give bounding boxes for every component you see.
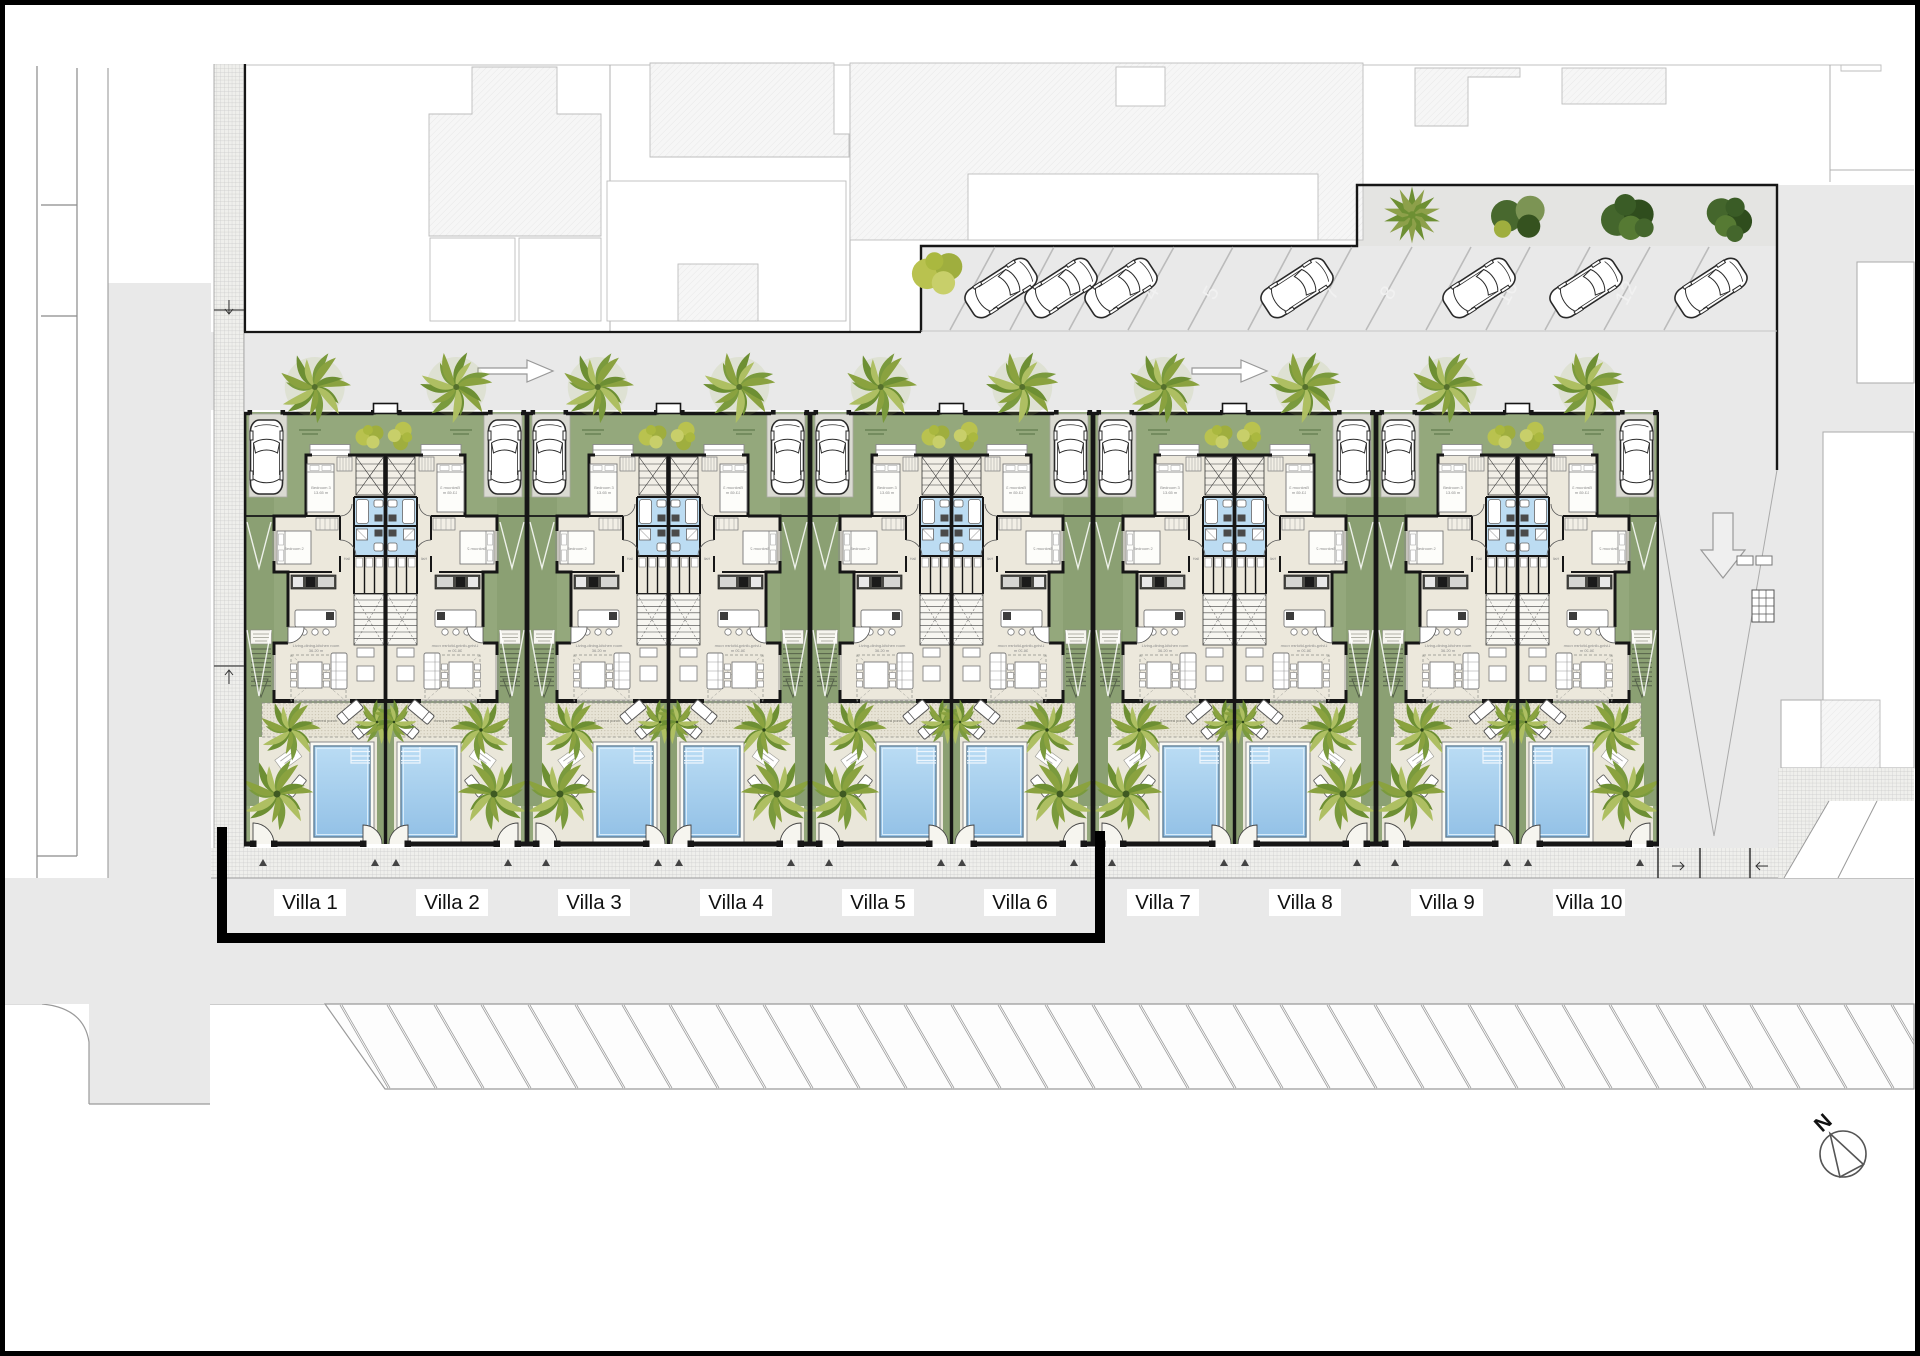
svg-text:Covered porch: Covered porch: [1443, 718, 1469, 723]
svg-text:36.20 m: 36.20 m: [1296, 648, 1311, 653]
svg-text:36.20 m: 36.20 m: [592, 648, 607, 653]
svg-text:Villa 3: Villa 3: [566, 891, 621, 914]
svg-text:Covered porch: Covered porch: [1000, 718, 1026, 723]
svg-text:13.65 m: 13.65 m: [1574, 490, 1589, 495]
svg-text:Covered porch: Covered porch: [1160, 718, 1186, 723]
svg-text:Hall: Hall: [987, 557, 993, 561]
svg-text:36.20 m: 36.20 m: [875, 648, 890, 653]
svg-text:Hall: Hall: [627, 557, 633, 561]
svg-text:Villa 10: Villa 10: [1556, 891, 1623, 914]
svg-text:Hall: Hall: [421, 557, 427, 561]
svg-text:Covered porch: Covered porch: [877, 718, 903, 723]
svg-text:Covered porch: Covered porch: [717, 718, 743, 723]
svg-text:Covered porch: Covered porch: [434, 718, 460, 723]
svg-text:13.65 m: 13.65 m: [725, 490, 740, 495]
svg-text:36.20 m: 36.20 m: [309, 648, 324, 653]
svg-text:Hall: Hall: [1553, 557, 1559, 561]
svg-text:13.65 m: 13.65 m: [1291, 490, 1306, 495]
svg-text:36.20 m: 36.20 m: [1441, 648, 1456, 653]
svg-text:Covered porch: Covered porch: [594, 718, 620, 723]
svg-text:Hall: Hall: [1476, 557, 1482, 561]
svg-text:13.65 m: 13.65 m: [1446, 490, 1461, 495]
svg-text:13.65 m: 13.65 m: [597, 490, 612, 495]
svg-text:Bedroom 2: Bedroom 2: [1315, 546, 1335, 551]
svg-text:Hall: Hall: [910, 557, 916, 561]
svg-text:13.65 m: 13.65 m: [442, 490, 457, 495]
svg-text:36.20 m: 36.20 m: [730, 648, 745, 653]
svg-text:36.20 m: 36.20 m: [1013, 648, 1028, 653]
svg-text:Bedroom 2: Bedroom 2: [1416, 546, 1436, 551]
svg-text:Villa 7: Villa 7: [1135, 891, 1190, 914]
svg-text:Villa 8: Villa 8: [1277, 891, 1332, 914]
svg-text:Villa 9: Villa 9: [1419, 891, 1474, 914]
svg-text:Hall: Hall: [344, 557, 350, 561]
svg-text:Villa 4: Villa 4: [708, 891, 763, 914]
svg-text:Hall: Hall: [1270, 557, 1276, 561]
svg-text:Bedroom 2: Bedroom 2: [284, 546, 304, 551]
svg-text:Bedroom 2: Bedroom 2: [466, 546, 486, 551]
svg-text:Covered porch: Covered porch: [1566, 718, 1592, 723]
svg-text:13.65 m: 13.65 m: [314, 490, 329, 495]
svg-text:13.65 m: 13.65 m: [1163, 490, 1178, 495]
svg-text:13.65 m: 13.65 m: [1008, 490, 1023, 495]
svg-text:Bedroom 2: Bedroom 2: [1598, 546, 1618, 551]
svg-text:Bedroom 2: Bedroom 2: [567, 546, 587, 551]
svg-text:36.20 m: 36.20 m: [447, 648, 462, 653]
svg-text:13.65 m: 13.65 m: [880, 490, 895, 495]
svg-text:Covered porch: Covered porch: [311, 718, 337, 723]
svg-text:Villa 1: Villa 1: [282, 891, 337, 914]
svg-text:Villa 6: Villa 6: [992, 891, 1047, 914]
svg-text:36.20 m: 36.20 m: [1158, 648, 1173, 653]
svg-text:Hall: Hall: [1193, 557, 1199, 561]
svg-text:Villa 5: Villa 5: [850, 891, 905, 914]
svg-text:Hall: Hall: [704, 557, 710, 561]
svg-text:Bedroom 2: Bedroom 2: [749, 546, 769, 551]
svg-text:Bedroom 2: Bedroom 2: [850, 546, 870, 551]
svg-text:Bedroom 2: Bedroom 2: [1032, 546, 1052, 551]
svg-text:36.20 m: 36.20 m: [1579, 648, 1594, 653]
svg-text:Bedroom 2: Bedroom 2: [1133, 546, 1153, 551]
svg-text:Villa 2: Villa 2: [424, 891, 479, 914]
svg-text:Covered porch: Covered porch: [1283, 718, 1309, 723]
